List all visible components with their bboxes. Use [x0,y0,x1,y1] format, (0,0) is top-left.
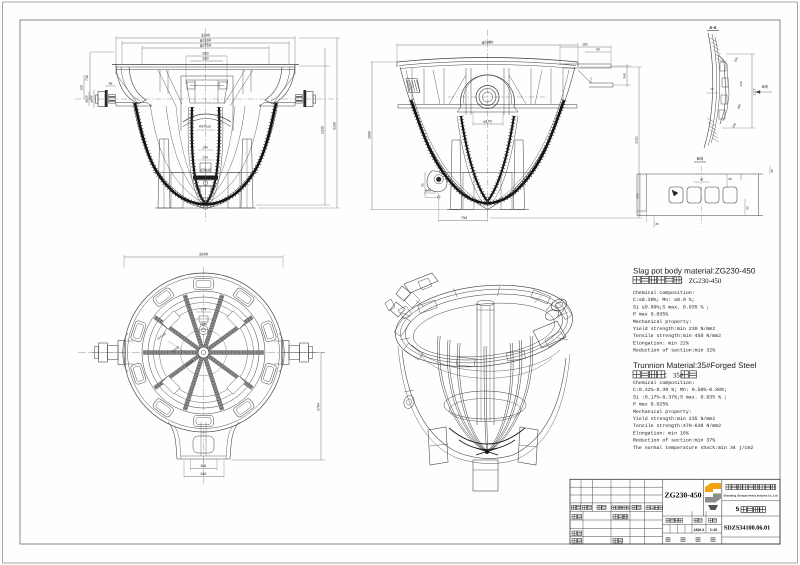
svg-text:Si ≤0.60%;S max. 0.035 % ;: Si ≤0.60%;S max. 0.035 % ; [633,304,709,310]
svg-text:40: 40 [700,178,704,182]
svg-text:5: 5 [736,506,740,513]
svg-text:346: 346 [623,73,627,79]
svg-text:Reduction of section:min 37%: Reduction of section:min 37% [633,438,715,444]
svg-text:Yield strength:min 235 N/mm2: Yield strength:min 235 N/mm2 [633,416,715,422]
svg-text:Mechanical property:: Mechanical property: [633,319,692,325]
svg-text:Si :0.17%-0.37%;S max. 0.035 %: Si :0.17%-0.37%;S max. 0.035 % ; [633,394,727,400]
svg-text:φ630: φ630 [90,95,94,102]
svg-text:P max 0.035%: P max 0.035% [633,312,668,318]
svg-text:85: 85 [421,183,425,187]
svg-text:1794: 1794 [317,403,321,411]
svg-text:168: 168 [739,81,743,86]
svg-text:φ2980: φ2980 [482,40,494,45]
svg-text:Elongation: min 22%: Elongation: min 22% [633,340,689,346]
svg-text:40: 40 [770,169,774,173]
svg-text:Slag pot body material:ZG230-4: Slag pot body material:ZG230-450 [633,267,756,276]
svg-text:794: 794 [461,216,467,220]
svg-text:φ170: φ170 [483,120,491,124]
svg-text:φ45: φ45 [425,189,431,193]
svg-text:φ160: φ160 [200,322,207,326]
svg-text:A-A: A-A [709,25,716,30]
svg-text:2050: 2050 [635,136,639,144]
svg-text:ZG230-450: ZG230-450 [665,491,702,500]
svg-text:1890: 1890 [368,131,372,139]
svg-text:50: 50 [746,206,750,210]
svg-text:Tensile strength:min 450 N/mm2: Tensile strength:min 450 N/mm2 [633,333,721,339]
svg-text:φ2250: φ2250 [200,43,212,48]
svg-text:Chemical composition:: Chemical composition: [633,290,695,296]
svg-text:2335: 2335 [321,126,325,134]
svg-text:Yield strength:min 230 N/mm2: Yield strength:min 230 N/mm2 [633,326,715,332]
svg-text:38: 38 [710,87,714,91]
svg-text:174: 174 [202,156,208,160]
svg-text:Elongation: min 16%: Elongation: min 16% [633,430,689,436]
svg-text:3340: 3340 [199,252,209,257]
svg-text:25: 25 [655,222,659,226]
svg-text:102: 102 [582,43,588,47]
svg-text:B向: B向 [697,156,704,161]
svg-text:430: 430 [636,193,640,198]
svg-text:1820.X: 1820.X [694,528,705,532]
svg-text:50: 50 [596,48,600,52]
svg-text:Shandong Zhongse Heavy Industr: Shandong Zhongse Heavy Industry Co., Ltd [724,495,778,498]
svg-text:C:≤0.30%; Mn: ≤0.9 %;: C:≤0.30%; Mn: ≤0.9 %; [633,297,695,303]
svg-text:Trunnion Material:35#Forged St: Trunnion Material:35#Forged Steel [633,361,757,370]
svg-text:174: 174 [201,308,207,312]
svg-text:： ZG230-450: ： ZG230-450 [680,277,722,285]
svg-text:Mechanical property:: Mechanical property: [633,409,692,415]
svg-text:95: 95 [109,82,113,86]
svg-text:Tensile strength:470-630 N/mm2: Tensile strength:470-630 N/mm2 [633,423,721,429]
svg-text:134: 134 [202,146,208,150]
svg-text:3100: 3100 [333,122,337,130]
svg-text:SDZS34100.06.01: SDZS34100.06.01 [724,525,770,532]
svg-text:Chemical composition:: Chemical composition: [633,380,695,386]
svg-text:90: 90 [728,177,732,181]
svg-text:The normal temperature shock:m: The normal temperature shock:min 34 j/cm… [633,445,753,451]
svg-text:R575±5: R575±5 [199,125,211,129]
svg-text:Reduction of section:min 32%: Reduction of section:min 32% [633,348,715,354]
svg-text:530: 530 [203,57,209,61]
svg-text:P max 0.025%: P max 0.025% [633,402,668,408]
svg-text:180: 180 [80,85,84,91]
svg-text:1:10: 1:10 [710,528,717,532]
svg-text:730: 730 [85,75,89,81]
svg-text:C:0.32%-0.39 %; Mn: 0.50%-0.80: C:0.32%-0.39 %; Mn: 0.50%-0.80%; [633,387,727,393]
svg-text:620: 620 [203,52,209,56]
svg-text:φ530: φ530 [85,95,89,102]
svg-text:B向: B向 [762,84,769,89]
